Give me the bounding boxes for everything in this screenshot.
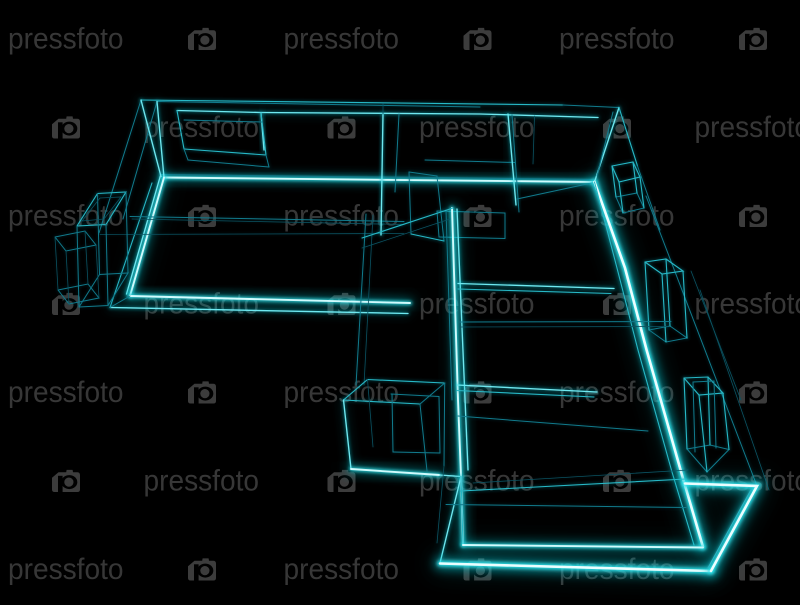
svg-text:pressfoto: pressfoto xyxy=(8,23,124,56)
svg-text:pressfoto: pressfoto xyxy=(559,23,675,56)
svg-text:pressfoto: pressfoto xyxy=(144,465,260,498)
svg-text:pressfoto: pressfoto xyxy=(8,376,124,409)
svg-text:pressfoto: pressfoto xyxy=(8,553,124,586)
svg-text:pressfoto: pressfoto xyxy=(284,23,400,56)
svg-text:pressfoto: pressfoto xyxy=(695,111,800,144)
svg-text:pressfoto: pressfoto xyxy=(284,553,400,586)
svg-text:pressfoto: pressfoto xyxy=(695,288,800,321)
svg-text:pressfoto: pressfoto xyxy=(419,288,535,321)
svg-text:pressfoto: pressfoto xyxy=(419,465,535,498)
